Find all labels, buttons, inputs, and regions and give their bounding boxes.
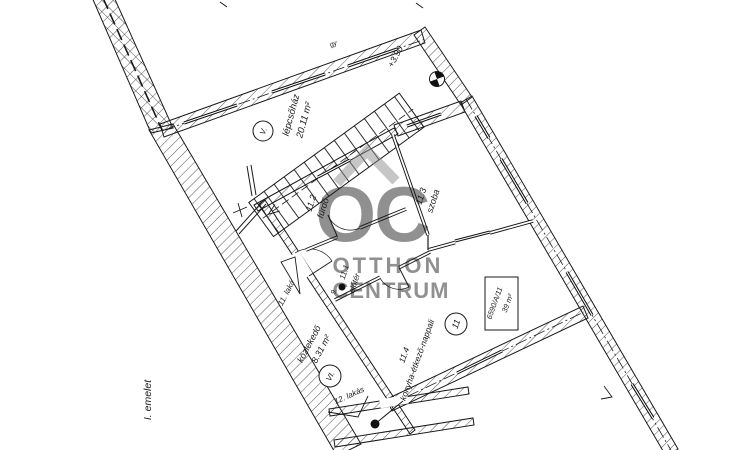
apartment-12-text: 12. lakás bbox=[333, 385, 366, 406]
wall-label-gy: gy bbox=[329, 40, 339, 49]
watermark: OC OTTHON CENTRUM bbox=[316, 151, 450, 303]
watermark-line2: CENTRUM bbox=[333, 278, 450, 303]
door-leaf-apt11 bbox=[309, 261, 332, 276]
exterior-wall-right bbox=[460, 96, 678, 450]
exterior-wall-top-left bbox=[91, 0, 173, 133]
room-11-4-id: 11.4 bbox=[397, 346, 412, 365]
watermark-logo: OC bbox=[316, 170, 430, 258]
staircase-label: lépcsőház 20.11 m² bbox=[281, 93, 315, 140]
floor-plan-page: +3.90 V. VI. 11 6590/A/11 39 m² 9. lépcs… bbox=[0, 0, 744, 450]
exterior-wall-top-right-corner bbox=[414, 27, 472, 105]
apartment-11-label: 11. lakás bbox=[276, 257, 300, 307]
corridor-flight-circle: VI. bbox=[319, 365, 341, 387]
top-tick-marks bbox=[220, 2, 423, 8]
stair-stub-wall bbox=[247, 165, 256, 196]
right-wall-arrow bbox=[601, 386, 612, 399]
floor-plan-drawing: +3.90 V. VI. 11 6590/A/11 39 m² 9. lépcs… bbox=[0, 0, 744, 450]
watermark-line1: OTTHON bbox=[333, 253, 444, 278]
unit-number-circle: 11 bbox=[445, 313, 467, 335]
section-cross-mark bbox=[233, 203, 247, 217]
floor-label: I. emelet bbox=[142, 379, 154, 420]
stair-flight-circle: V. bbox=[253, 121, 273, 141]
wall-11-3-bottom bbox=[428, 221, 533, 250]
unit-info-box: 6590/A/11 39 m² bbox=[484, 277, 518, 330]
